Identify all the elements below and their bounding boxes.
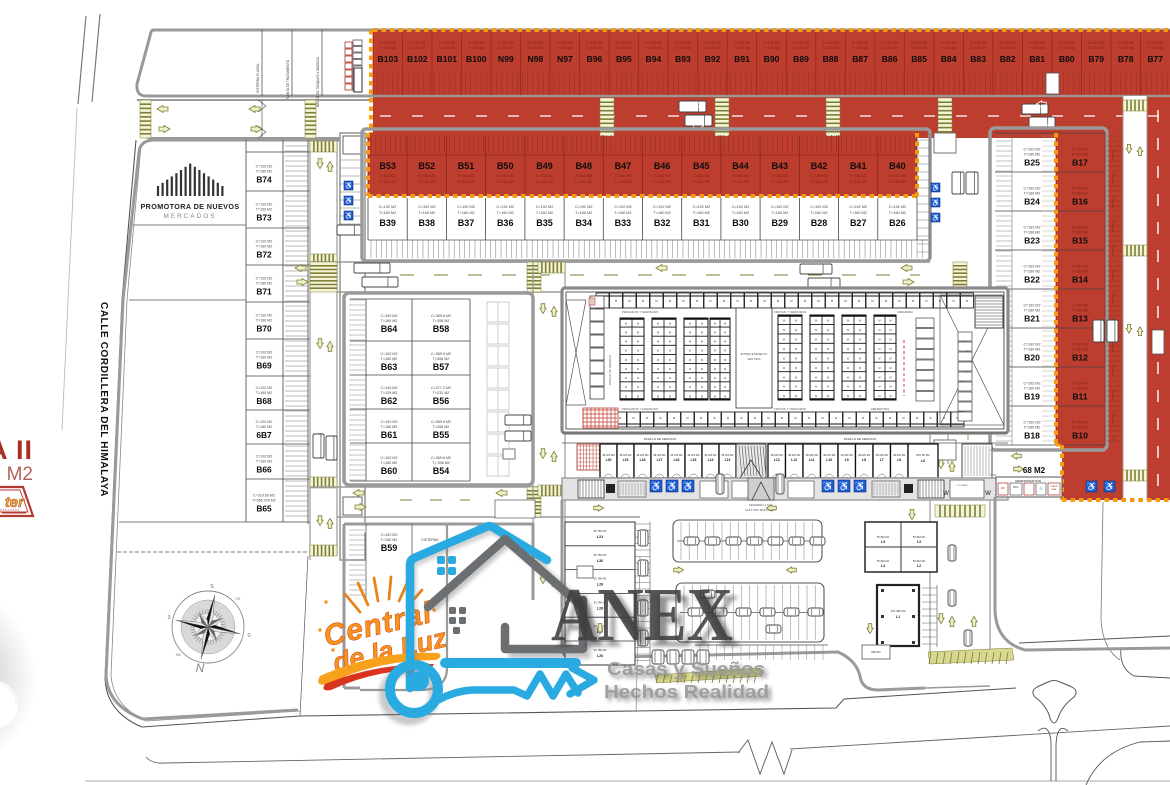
svg-text:FRUTAS Y VERDURAS: FRUTAS Y VERDURAS bbox=[774, 310, 806, 314]
svg-text:B51: B51 bbox=[458, 161, 475, 171]
svg-text:M: M bbox=[879, 320, 881, 323]
svg-text:887.80 M2: 887.80 M2 bbox=[916, 453, 930, 457]
svg-text:M: M bbox=[859, 320, 861, 323]
svg-text:M: M bbox=[701, 395, 703, 398]
svg-text:48.425 M2: 48.425 M2 bbox=[636, 453, 649, 457]
svg-text:M: M bbox=[815, 376, 817, 379]
svg-text:M: M bbox=[815, 348, 817, 351]
svg-text:B17: B17 bbox=[1072, 158, 1088, 168]
svg-text:48.425 M2: 48.425 M2 bbox=[876, 453, 889, 457]
svg-text:M: M bbox=[827, 367, 829, 370]
svg-text:48.425 M2: 48.425 M2 bbox=[858, 453, 871, 457]
svg-text:T=120 M2: T=120 M2 bbox=[1118, 46, 1134, 50]
svg-text:B73: B73 bbox=[256, 213, 272, 223]
svg-text:L13: L13 bbox=[725, 458, 731, 462]
svg-text:T=160 M2: T=160 M2 bbox=[1024, 270, 1041, 274]
svg-text:101.480 M2: 101.480 M2 bbox=[891, 609, 906, 613]
svg-text:T=120 M2: T=120 M2 bbox=[380, 46, 396, 50]
svg-text:C=192 M2: C=192 M2 bbox=[256, 203, 273, 207]
svg-text:M: M bbox=[686, 416, 688, 420]
svg-text:L16: L16 bbox=[674, 458, 680, 462]
svg-text:B35: B35 bbox=[536, 218, 553, 228]
svg-text:B41: B41 bbox=[850, 161, 867, 171]
svg-text:L19: L19 bbox=[623, 458, 629, 462]
svg-text:B18: B18 bbox=[1024, 431, 1040, 441]
svg-text:48.425 M2: 48.425 M2 bbox=[771, 453, 784, 457]
svg-text:C=144 M2: C=144 M2 bbox=[1088, 41, 1105, 45]
svg-text:48.425 M2: 48.425 M2 bbox=[893, 453, 906, 457]
svg-text:♿: ♿ bbox=[344, 196, 353, 205]
svg-text:B70: B70 bbox=[256, 324, 272, 334]
svg-text:T=160 M2: T=160 M2 bbox=[381, 538, 398, 542]
svg-text:C=192 M2: C=192 M2 bbox=[1023, 148, 1040, 152]
svg-text:M: M bbox=[847, 320, 849, 323]
svg-text:ABARROTES: ABARROTES bbox=[871, 407, 890, 411]
svg-text:C=192 M2: C=192 M2 bbox=[732, 205, 750, 209]
svg-text:T=160 M2: T=160 M2 bbox=[536, 211, 553, 215]
svg-text:B90: B90 bbox=[764, 54, 780, 64]
svg-text:T=160 M2: T=160 M2 bbox=[256, 282, 272, 286]
svg-text:L18: L18 bbox=[640, 458, 646, 462]
svg-text:M: M bbox=[879, 376, 881, 379]
svg-text:T=160 M2: T=160 M2 bbox=[614, 174, 631, 178]
svg-text:C=192 M2: C=192 M2 bbox=[1071, 226, 1088, 230]
svg-text:B102: B102 bbox=[407, 54, 428, 64]
svg-text:T=160 M2: T=160 M2 bbox=[653, 211, 670, 215]
svg-text:M: M bbox=[804, 299, 806, 303]
svg-text:M: M bbox=[689, 350, 691, 353]
svg-text:48.425 M2: 48.425 M2 bbox=[788, 453, 801, 457]
svg-text:C=144 M2: C=144 M2 bbox=[468, 41, 485, 45]
svg-text:48.425 M2: 48.425 M2 bbox=[653, 453, 666, 457]
svg-text:M: M bbox=[795, 339, 797, 342]
svg-text:M: M bbox=[815, 395, 817, 398]
svg-text:T=120 M2: T=120 M2 bbox=[1088, 46, 1104, 50]
svg-text:B71: B71 bbox=[256, 287, 272, 297]
svg-text:M: M bbox=[689, 377, 691, 380]
svg-text:T=120 M2: T=120 M2 bbox=[852, 46, 868, 50]
svg-text:M: M bbox=[848, 416, 850, 420]
svg-text:T=160 M2: T=160 M2 bbox=[575, 211, 592, 215]
svg-text:C=144 M2: C=144 M2 bbox=[940, 41, 957, 45]
svg-text:B103: B103 bbox=[378, 54, 399, 64]
svg-text:B63: B63 bbox=[381, 362, 398, 372]
svg-text:T=160 M2: T=160 M2 bbox=[256, 208, 272, 212]
svg-text:CISTERNA: CISTERNA bbox=[421, 538, 439, 542]
svg-text:PESCADOS Y MARISCOS: PESCADOS Y MARISCOS bbox=[622, 407, 658, 411]
svg-text:M: M bbox=[689, 386, 691, 389]
svg-text:SENDERO 2 KV: SENDERO 2 KV bbox=[749, 503, 771, 507]
svg-text:M: M bbox=[847, 357, 849, 360]
svg-text:M: M bbox=[724, 377, 726, 380]
svg-text:C=192 M2: C=192 M2 bbox=[575, 205, 593, 209]
svg-text:M: M bbox=[714, 332, 716, 335]
svg-text:M: M bbox=[862, 416, 864, 420]
svg-text:B44: B44 bbox=[732, 161, 749, 171]
svg-text:M: M bbox=[669, 395, 671, 398]
svg-text:♿: ♿ bbox=[1086, 482, 1097, 492]
svg-text:L30: L30 bbox=[597, 559, 603, 563]
svg-text:M: M bbox=[783, 376, 785, 379]
svg-text:48.425 M2: 48.425 M2 bbox=[721, 453, 734, 457]
svg-text:T=160 M2: T=160 M2 bbox=[614, 211, 631, 215]
svg-text:C=144 M2: C=144 M2 bbox=[1147, 41, 1164, 45]
svg-text:M: M bbox=[701, 386, 703, 389]
svg-text:C=144 M2: C=144 M2 bbox=[1117, 41, 1134, 45]
svg-text:C=192 M2: C=192 M2 bbox=[1023, 343, 1040, 347]
svg-text:M: M bbox=[713, 416, 715, 420]
svg-text:♿: ♿ bbox=[666, 480, 678, 492]
svg-text:M: M bbox=[625, 332, 627, 335]
svg-text:C=192 M2: C=192 M2 bbox=[1071, 187, 1088, 191]
svg-text:M: M bbox=[625, 377, 627, 380]
svg-text:T=160 M2: T=160 M2 bbox=[497, 211, 514, 215]
svg-text:B38: B38 bbox=[419, 218, 436, 228]
svg-text:B74: B74 bbox=[256, 175, 272, 185]
svg-text:⚓: ⚓ bbox=[1039, 486, 1043, 490]
svg-text:B19: B19 bbox=[1024, 392, 1040, 402]
svg-text:C=192 M2: C=192 M2 bbox=[889, 205, 907, 209]
svg-text:M: M bbox=[795, 376, 797, 379]
svg-text:L9: L9 bbox=[845, 458, 849, 462]
svg-text:M: M bbox=[890, 329, 892, 332]
svg-text:T=160 M2: T=160 M2 bbox=[771, 211, 788, 215]
svg-text:T=120 M2: T=120 M2 bbox=[468, 46, 484, 50]
svg-text:0: 0 bbox=[247, 633, 250, 639]
svg-text:M: M bbox=[669, 359, 671, 362]
svg-text:C=144 M2: C=144 M2 bbox=[822, 41, 839, 45]
svg-text:L14: L14 bbox=[708, 458, 714, 462]
svg-text:M: M bbox=[625, 368, 627, 371]
svg-text:C=192 M2: C=192 M2 bbox=[1023, 304, 1040, 308]
svg-text:T=120 M2: T=120 M2 bbox=[381, 391, 398, 395]
svg-text:CISTERNA PLUVIAL: CISTERNA PLUVIAL bbox=[256, 63, 260, 93]
svg-text:T=160 M2: T=160 M2 bbox=[1072, 231, 1089, 235]
svg-text:M: M bbox=[879, 386, 881, 389]
svg-text:M: M bbox=[673, 416, 675, 420]
svg-text:ZEN KIDS: ZEN KIDS bbox=[748, 357, 761, 361]
svg-text:B14: B14 bbox=[1072, 275, 1088, 285]
svg-text:M: M bbox=[783, 329, 785, 332]
svg-text:CREMERIA: CREMERIA bbox=[897, 310, 913, 314]
svg-text:B50: B50 bbox=[497, 161, 514, 171]
svg-text:M: M bbox=[871, 299, 873, 303]
svg-text:T=160 M2: T=160 M2 bbox=[653, 174, 670, 178]
svg-text:M: M bbox=[724, 368, 726, 371]
svg-text:B100: B100 bbox=[466, 54, 487, 64]
svg-text:M: M bbox=[815, 357, 817, 360]
svg-text:M: M bbox=[625, 386, 627, 389]
svg-text:B49: B49 bbox=[536, 161, 553, 171]
svg-text:C=144 M2: C=144 M2 bbox=[616, 41, 633, 45]
svg-text:M: M bbox=[847, 395, 849, 398]
svg-text:C=192 M2: C=192 M2 bbox=[418, 180, 436, 184]
svg-text:T=160 M2: T=160 M2 bbox=[889, 174, 906, 178]
svg-text:M: M bbox=[815, 329, 817, 332]
svg-text:M: M bbox=[902, 416, 904, 420]
svg-text:T=160 M2: T=160 M2 bbox=[1024, 192, 1041, 196]
svg-text:S: S bbox=[210, 584, 214, 590]
svg-text:T=120 M2: T=120 M2 bbox=[970, 46, 986, 50]
svg-text:T=160 M2: T=160 M2 bbox=[457, 211, 474, 215]
svg-text:M: M bbox=[714, 368, 716, 371]
svg-text:M: M bbox=[637, 386, 639, 389]
svg-text:M: M bbox=[724, 350, 726, 353]
svg-text:T=120 M2: T=120 M2 bbox=[822, 46, 838, 50]
svg-text:B13: B13 bbox=[1072, 314, 1088, 324]
svg-text:B84: B84 bbox=[941, 54, 957, 64]
svg-text:FRUTAS Y VERDURAS: FRUTAS Y VERDURAS bbox=[774, 407, 806, 411]
svg-text:M: M bbox=[777, 299, 779, 303]
svg-text:PLANTA DE TRATAMIENTO: PLANTA DE TRATAMIENTO bbox=[286, 59, 290, 100]
svg-text:3: 3 bbox=[167, 615, 170, 621]
svg-text:C=144 M2: C=144 M2 bbox=[852, 41, 869, 45]
svg-text:M: M bbox=[657, 386, 659, 389]
svg-text:M: M bbox=[815, 320, 817, 323]
svg-text:M: M bbox=[879, 339, 881, 342]
svg-text:M: M bbox=[727, 416, 729, 420]
svg-text:M: M bbox=[827, 348, 829, 351]
svg-text:C=192 M2: C=192 M2 bbox=[256, 277, 273, 281]
svg-text:B85: B85 bbox=[911, 54, 927, 64]
svg-text:C=192 M2: C=192 M2 bbox=[810, 180, 828, 184]
svg-text:55.962 M2: 55.962 M2 bbox=[913, 535, 926, 539]
svg-text:68 M2: 68 M2 bbox=[1023, 466, 1046, 475]
svg-text:C=192 M2: C=192 M2 bbox=[256, 314, 273, 318]
svg-text:B81: B81 bbox=[1029, 54, 1045, 64]
svg-text:C=192 M2: C=192 M2 bbox=[692, 205, 710, 209]
svg-text:B58: B58 bbox=[433, 324, 450, 334]
svg-text:M: M bbox=[859, 348, 861, 351]
svg-text:T=160 M2: T=160 M2 bbox=[1024, 153, 1041, 157]
svg-text:M: M bbox=[669, 341, 671, 344]
svg-text:M: M bbox=[669, 386, 671, 389]
svg-text:T=160 M2: T=160 M2 bbox=[693, 174, 710, 178]
svg-text:T=160 M2: T=160 M2 bbox=[1024, 231, 1041, 235]
svg-text:T=160 M2: T=160 M2 bbox=[1072, 348, 1089, 352]
svg-text:T=160 M2: T=160 M2 bbox=[1072, 192, 1089, 196]
svg-text:T=160 M2: T=160 M2 bbox=[1072, 153, 1089, 157]
svg-text:T=160 M2: T=160 M2 bbox=[889, 211, 906, 215]
svg-text:M: M bbox=[794, 416, 796, 420]
svg-text:C=144 M2: C=144 M2 bbox=[1058, 41, 1075, 45]
svg-text:L11: L11 bbox=[809, 458, 815, 462]
svg-text:C=192 M2: C=192 M2 bbox=[1023, 382, 1040, 386]
svg-text:M: M bbox=[827, 395, 829, 398]
svg-text:L17: L17 bbox=[657, 458, 663, 462]
svg-text:M: M bbox=[701, 368, 703, 371]
svg-text:B79: B79 bbox=[1088, 54, 1104, 64]
svg-text:T=160 M2: T=160 M2 bbox=[1024, 309, 1041, 313]
svg-text:C=192 M2: C=192 M2 bbox=[380, 533, 397, 537]
svg-text:M: M bbox=[689, 341, 691, 344]
svg-text:T=120 M2: T=120 M2 bbox=[527, 46, 543, 50]
svg-text:♿: ♿ bbox=[854, 480, 866, 492]
svg-text:L6: L6 bbox=[921, 459, 925, 463]
svg-text:C=144 M2: C=144 M2 bbox=[1029, 41, 1046, 45]
svg-text:M: M bbox=[795, 357, 797, 360]
svg-text:ter: ter bbox=[5, 494, 25, 511]
svg-text:L6: L6 bbox=[897, 458, 901, 462]
svg-text:M: M bbox=[750, 299, 752, 303]
svg-text:T=160 M2: T=160 M2 bbox=[732, 174, 749, 178]
svg-text:B72: B72 bbox=[256, 250, 272, 260]
svg-text:M: M bbox=[642, 299, 644, 303]
svg-text:B10: B10 bbox=[1072, 431, 1088, 441]
svg-text:T=120 M2: T=120 M2 bbox=[763, 46, 779, 50]
svg-text:M: M bbox=[696, 299, 698, 303]
svg-text:B24: B24 bbox=[1024, 197, 1040, 207]
svg-text:M: M bbox=[817, 299, 819, 303]
svg-text:B45: B45 bbox=[693, 161, 710, 171]
svg-text:L10: L10 bbox=[826, 458, 832, 462]
svg-text:M: M bbox=[724, 386, 726, 389]
svg-text:M: M bbox=[795, 329, 797, 332]
svg-text:B59: B59 bbox=[381, 543, 398, 553]
svg-text:M: M bbox=[879, 329, 881, 332]
svg-text:B57: B57 bbox=[433, 362, 450, 372]
svg-text:M: M bbox=[925, 299, 927, 303]
svg-text:55.962 M2: 55.962 M2 bbox=[913, 559, 926, 563]
svg-text:T=120 M2: T=120 M2 bbox=[409, 46, 425, 50]
svg-text:B30: B30 bbox=[732, 218, 749, 228]
svg-text:M: M bbox=[669, 322, 671, 325]
svg-text:T=120 M2: T=120 M2 bbox=[704, 46, 720, 50]
svg-text:C=369.6 M2: C=369.6 M2 bbox=[431, 314, 451, 318]
svg-text:T=160 M2: T=160 M2 bbox=[1072, 270, 1089, 274]
svg-text:C=192 M2: C=192 M2 bbox=[380, 314, 397, 318]
svg-text:T=308 M2: T=308 M2 bbox=[433, 319, 450, 323]
svg-text:C=192 M2: C=192 M2 bbox=[256, 420, 273, 424]
svg-text:C=369.6 M2: C=369.6 M2 bbox=[431, 352, 451, 356]
svg-text:C=192 M2: C=192 M2 bbox=[692, 180, 710, 184]
svg-text:C=192 M2: C=192 M2 bbox=[849, 180, 867, 184]
svg-text:T=160 M2: T=160 M2 bbox=[1072, 309, 1089, 313]
svg-text:M: M bbox=[637, 377, 639, 380]
svg-text:48.425 M2: 48.425 M2 bbox=[670, 453, 683, 457]
svg-text:M: M bbox=[637, 322, 639, 325]
svg-text:M: M bbox=[619, 416, 621, 420]
svg-text:C=192 M2: C=192 M2 bbox=[536, 180, 554, 184]
svg-text:M: M bbox=[879, 357, 881, 360]
svg-text:T=120 M2: T=120 M2 bbox=[1059, 46, 1075, 50]
svg-text:M: M bbox=[929, 416, 931, 420]
svg-text:B32: B32 bbox=[654, 218, 671, 228]
svg-text:B69: B69 bbox=[256, 361, 272, 371]
svg-text:C=192 M2: C=192 M2 bbox=[256, 351, 273, 355]
svg-text:T=120 M2: T=120 M2 bbox=[734, 46, 750, 50]
svg-text:M: M bbox=[827, 357, 829, 360]
svg-text:B56: B56 bbox=[433, 396, 450, 406]
svg-text:M: M bbox=[655, 299, 657, 303]
svg-text:M: M bbox=[657, 332, 659, 335]
svg-text:Hechos Realidad: Hechos Realidad bbox=[604, 682, 769, 702]
svg-text:C=192 M2: C=192 M2 bbox=[256, 165, 273, 169]
svg-text:M: M bbox=[646, 416, 648, 420]
svg-text:M: M bbox=[754, 416, 756, 420]
svg-text:B52: B52 bbox=[419, 161, 436, 171]
svg-text:C=144 M2: C=144 M2 bbox=[881, 41, 898, 45]
svg-text:PASILLO DE SERVICIO: PASILLO DE SERVICIO bbox=[608, 354, 612, 385]
svg-text:♿: ♿ bbox=[650, 480, 662, 492]
svg-text:M: M bbox=[700, 416, 702, 420]
svg-text:L3: L3 bbox=[917, 540, 921, 544]
svg-text:3N: 3N bbox=[175, 652, 180, 657]
svg-text:M: M bbox=[827, 376, 829, 379]
svg-text:C=192 M2: C=192 M2 bbox=[849, 205, 867, 209]
svg-text:T=120 M2: T=120 M2 bbox=[439, 46, 455, 50]
svg-text:B91: B91 bbox=[734, 54, 750, 64]
svg-text:T=160 M2: T=160 M2 bbox=[536, 174, 553, 178]
svg-text:B82: B82 bbox=[1000, 54, 1016, 64]
svg-text:Casas y Sueños: Casas y Sueños bbox=[607, 659, 765, 679]
svg-text:M: M bbox=[889, 416, 891, 420]
svg-text:M: M bbox=[890, 367, 892, 370]
svg-text:B92: B92 bbox=[705, 54, 721, 64]
svg-text:M: M bbox=[669, 368, 671, 371]
svg-text:M: M bbox=[912, 299, 914, 303]
svg-text:B26: B26 bbox=[889, 218, 906, 228]
svg-text:M: M bbox=[781, 416, 783, 420]
svg-text:M: M bbox=[890, 357, 892, 360]
svg-text:M: M bbox=[625, 322, 627, 325]
svg-text:C=144 M2: C=144 M2 bbox=[999, 41, 1016, 45]
svg-text:M: M bbox=[795, 386, 797, 389]
svg-text:GRAL: GRAL bbox=[1051, 488, 1057, 491]
svg-text:M: M bbox=[827, 339, 829, 342]
svg-text:WC: WC bbox=[1001, 487, 1005, 490]
svg-text:B89: B89 bbox=[793, 54, 809, 64]
svg-text:M: M bbox=[783, 339, 785, 342]
svg-text:M: M bbox=[701, 332, 703, 335]
svg-text:L8: L8 bbox=[862, 458, 866, 462]
svg-text:T=120 M2: T=120 M2 bbox=[498, 46, 514, 50]
svg-text:A II: A II bbox=[0, 435, 33, 465]
svg-text:T=160 M2: T=160 M2 bbox=[1024, 348, 1041, 352]
svg-text:C=144 M2: C=144 M2 bbox=[675, 41, 692, 45]
svg-text:0S: 0S bbox=[236, 596, 241, 601]
svg-text:M: M bbox=[847, 386, 849, 389]
svg-text:M: M bbox=[858, 299, 860, 303]
svg-text:C=192 M2: C=192 M2 bbox=[256, 386, 273, 390]
svg-text:C=192 M2: C=192 M2 bbox=[256, 455, 273, 459]
svg-text:L5: L5 bbox=[881, 540, 885, 544]
svg-text:B95: B95 bbox=[616, 54, 632, 64]
svg-text:M: M bbox=[847, 348, 849, 351]
svg-text:M: M bbox=[847, 367, 849, 370]
svg-text:M: M bbox=[657, 350, 659, 353]
svg-text:48.425 M2: 48.425 M2 bbox=[806, 453, 819, 457]
svg-text:M: M bbox=[783, 386, 785, 389]
svg-text:T=120 M2: T=120 M2 bbox=[1029, 46, 1045, 50]
svg-text:CUARTO: CUARTO bbox=[1050, 485, 1059, 488]
svg-text:M: M bbox=[808, 416, 810, 420]
svg-text:W: W bbox=[943, 491, 949, 497]
svg-text:M: M bbox=[714, 350, 716, 353]
svg-text:T=160 M2: T=160 M2 bbox=[379, 174, 396, 178]
svg-text:T=160 M2: T=160 M2 bbox=[1072, 426, 1089, 430]
svg-text:M: M bbox=[890, 376, 892, 379]
svg-text:T=160 M2: T=160 M2 bbox=[256, 391, 272, 395]
svg-text:B39: B39 bbox=[379, 218, 396, 228]
svg-text:M: M bbox=[890, 348, 892, 351]
svg-text:M: M bbox=[657, 368, 659, 371]
svg-text:M: M bbox=[736, 299, 738, 303]
svg-text:C=192 M2: C=192 M2 bbox=[614, 180, 632, 184]
svg-text:65.780 M2: 65.780 M2 bbox=[594, 529, 607, 533]
svg-text:M: M bbox=[847, 329, 849, 332]
svg-text:C=192 M2: C=192 M2 bbox=[1071, 148, 1088, 152]
